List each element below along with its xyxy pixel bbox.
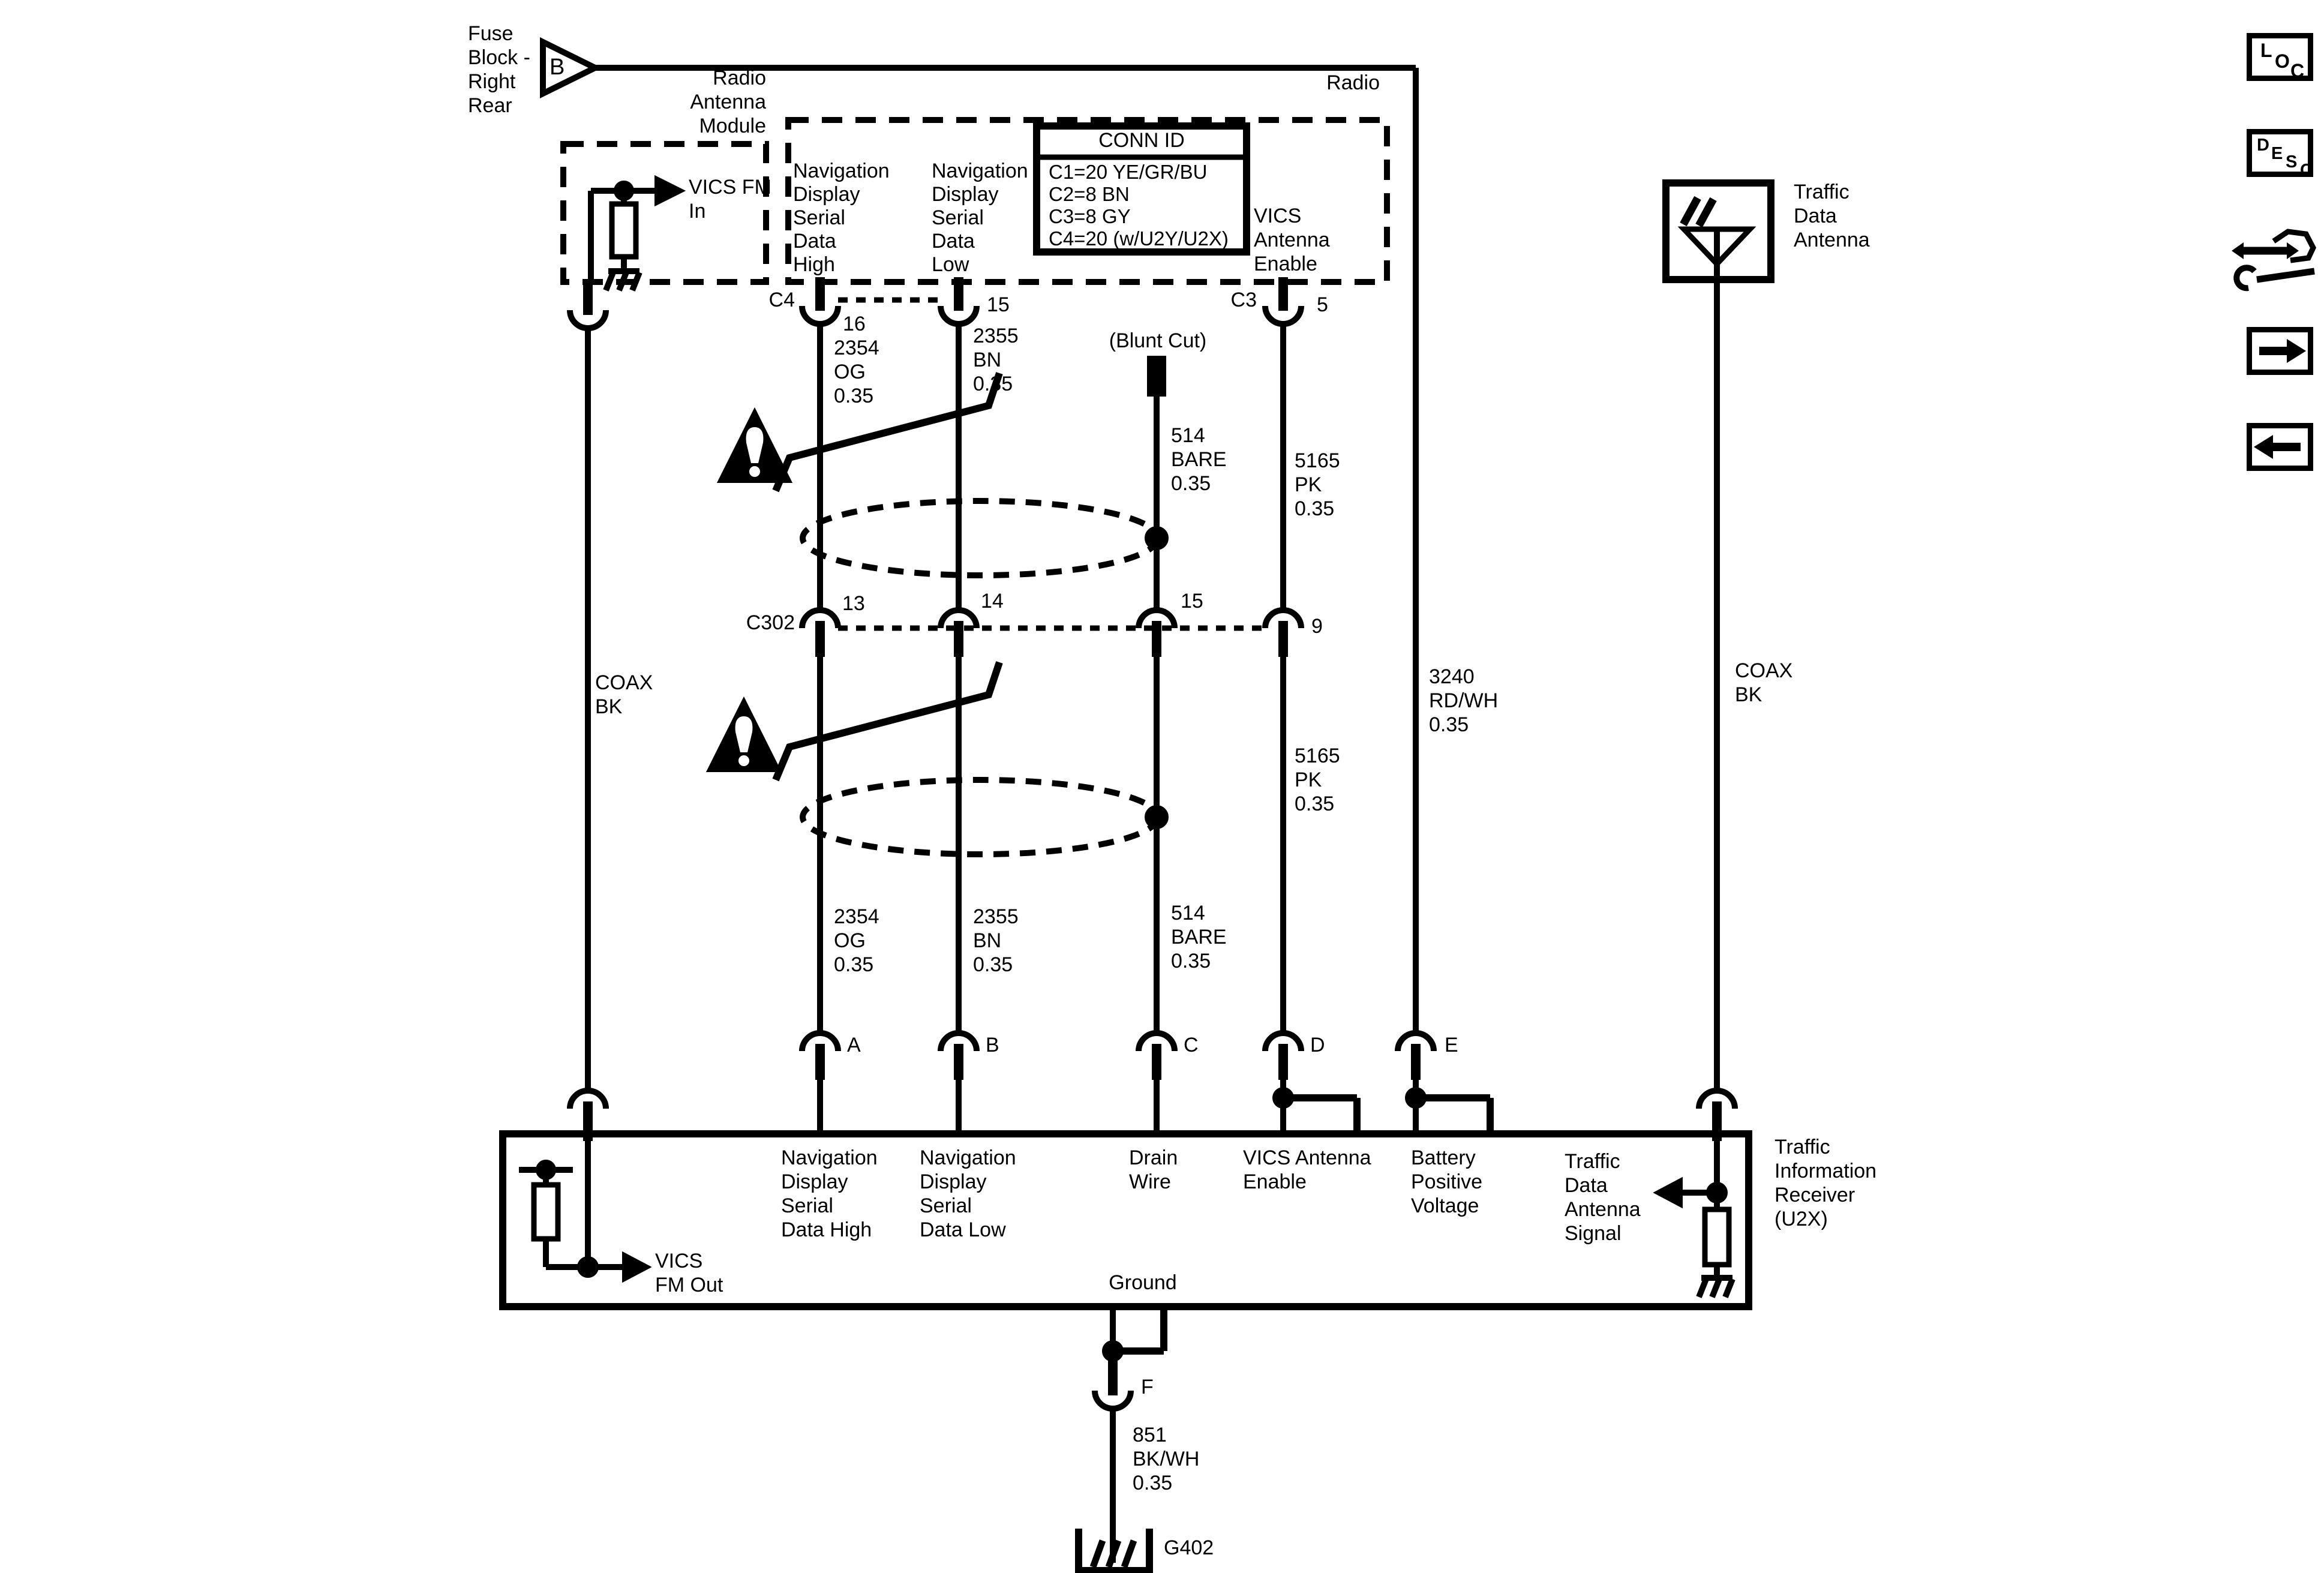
pin-e-label: E [1445,1033,1458,1057]
c302-label: C302 [735,611,795,635]
wire-coax-left [570,282,606,1267]
wire-battery [1398,68,1490,1134]
wire-label-2355-lower: 2355 BN 0.35 [973,905,1019,977]
fuse-block-label: Fuse Block - Right Rear [468,22,530,118]
receiver-vics-enable-label: VICS Antenna Enable [1243,1146,1371,1194]
desc-letter-e: E [2271,144,2283,164]
wire-label-5165-upper: 5165 PK 0.35 [1295,449,1340,521]
arrow-right-icon [625,1256,645,1278]
chassis-ground-icon [606,271,639,290]
rf-waves-icon [1683,198,1713,226]
trace-tool-icon [2230,221,2324,293]
conn-id-title: CONN ID [1037,128,1247,152]
g402-label: G402 [1164,1536,1214,1560]
conn-c3-label: C3 [1209,288,1257,312]
arrow-right-head [2287,242,2299,259]
pin-b-label: B [986,1033,999,1057]
vics-fm-out-circuit [519,1163,645,1278]
seg [1699,1279,1733,1297]
radio-nav-high-label: Navigation Display Serial Data High [793,160,890,277]
c302-pin-9: 9 [1311,614,1323,638]
wire-label-851: 851 BK/WH 0.35 [1133,1423,1199,1495]
pointer-outline [2274,232,2313,260]
receiver-drain-label: Drain Wire [1129,1146,1178,1194]
leader-line [776,373,999,491]
pin-c-label: C [1184,1033,1199,1057]
back-button[interactable] [2247,423,2313,471]
conn-c4-label: C4 [747,288,795,312]
wire-coax-right [1699,280,1735,1193]
wire-label-514-lower: 514 BARE 0.35 [1171,901,1227,973]
radio-nav-low-label: Navigation Display Serial Data Low [932,160,1028,277]
branch [1416,1098,1490,1134]
wire-label-3240: 3240 RD/WH 0.35 [1429,665,1498,737]
pin-f-label: F [1141,1375,1154,1399]
leader-line [776,662,999,780]
arrow-right-icon [657,180,679,202]
coax-bk-left-label: COAX BK [595,671,653,719]
desc-letter-d: D [2257,136,2269,155]
chassis-ground-icon [1699,1278,1733,1297]
wire-label-2355-upper: 2355 BN 0.35 [973,324,1019,396]
pin-5-label: 5 [1317,293,1328,317]
head [2254,435,2273,459]
vics-fm-out-label: VICS FM Out [655,1249,723,1297]
arrow-right-icon [2252,332,2308,370]
c302-pin-14: 14 [981,589,1004,613]
hatch [1093,1541,1134,1567]
receiver-traffic-signal-label: Traffic Data Antenna Signal [1565,1149,1641,1245]
desc-letter-c: C [2300,161,2313,181]
wire-drain [1139,359,1175,1134]
wire-label-514-upper: 514 BARE 0.35 [1171,424,1227,496]
fuse-feed-pin: B [550,55,565,79]
trace-tool-button[interactable] [2230,221,2324,293]
radio-title: Radio [1290,71,1380,95]
resistor [612,204,636,257]
conn-id-rows: C1=20 YE/GR/BU C2=8 BN C3=8 GY C4=20 (w/… [1049,161,1229,250]
wire-label-5165-lower: 5165 PK 0.35 [1295,744,1340,816]
radio-antenna-module-title: Radio Antenna Module [624,66,766,138]
radio-vics-enable-label: VICS Antenna Enable [1254,204,1330,276]
blunt-cut-label: (Blunt Cut) [1065,329,1251,353]
resistor [1705,1209,1729,1265]
desc-button[interactable]: D E S C [2247,129,2313,177]
wire-label-2354-upper: 2354 OG 0.35 [834,336,879,408]
coax-bk-right-label: COAX BK [1735,659,1792,707]
loc-letter-l: L [2260,40,2272,62]
c302-pin-15: 15 [1181,589,1203,613]
trace-glyph [2232,232,2314,288]
shield-junction-dot [1148,808,1166,826]
wire-label-2354-lower: 2354 OG 0.35 [834,905,879,977]
branch [1283,1098,1357,1134]
receiver-nav-low-label: Navigation Display Serial Data Low [920,1146,1016,1242]
shield-ellipse-upper [803,501,1158,575]
arrow-left-head [2232,242,2244,259]
wire-nav-high [802,277,838,1134]
loc-letter-o: O [2275,50,2290,73]
pin-d-label: D [1310,1033,1325,1057]
arrow-left-icon [2252,428,2308,466]
wiring-diagram-page: Fuse Block - Right Rear B Radio Antenna … [0,0,2324,1573]
receiver-title: Traffic Information Receiver (U2X) [1774,1135,1876,1231]
traffic-data-antenna-symbol [1666,183,1771,280]
receiver-nav-high-label: Navigation Display Serial Data High [781,1146,878,1242]
arrow-left-icon [1659,1182,1680,1203]
seg [606,272,639,290]
wrench-jaw [2236,268,2254,288]
pin-15-label: 15 [987,293,1010,317]
loc-button[interactable]: L O C [2247,33,2313,81]
shield-junction-dot [1148,529,1166,547]
vics-fm-in-label: VICS FM In [689,175,771,223]
excl-dot [749,466,760,477]
blunt-cut-terminal [1150,359,1163,394]
desc-letter-s: S [2286,152,2297,172]
next-button[interactable] [2247,327,2313,375]
pin-16-label: 16 [843,312,866,336]
traffic-signal-circuit [1659,1182,1733,1297]
traffic-data-antenna-title: Traffic Data Antenna [1794,180,1870,252]
wire-vics-enable [1265,277,1357,1134]
loc-letter-c: C [2290,60,2304,82]
junction-dot [580,1259,596,1275]
diagram-lines [503,42,1771,1571]
resistor [534,1185,558,1239]
c302-pin-13: 13 [842,592,865,616]
head [2287,339,2306,363]
excl-dot [738,755,749,766]
vics-fm-in-circuit [591,180,679,290]
wrench-handle [2257,271,2314,280]
pin-a-label: A [847,1033,861,1057]
receiver-battery-label: Battery Positive Voltage [1411,1146,1482,1218]
shield-ellipse-lower [803,780,1158,854]
receiver-ground-label: Ground [1092,1271,1194,1295]
